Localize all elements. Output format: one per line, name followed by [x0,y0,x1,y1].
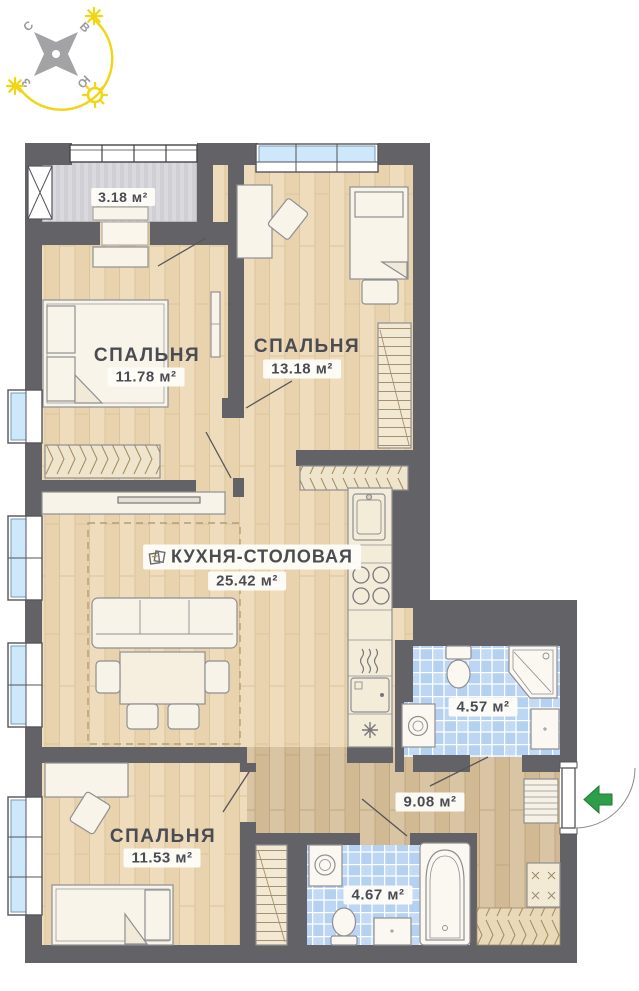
entry-door-leaf [562,768,575,828]
dining-table [120,652,205,704]
sun-icon [86,8,102,24]
compass-west: З [19,75,34,90]
window [8,516,42,600]
vanity [374,918,411,945]
shoe-cabinet [524,779,558,823]
label-bathroom2-area: 4.67 м² [344,886,413,905]
entry-arrow-icon [584,786,612,813]
storage-cabinet [527,863,560,907]
window [8,643,42,727]
floor-hallway [247,747,566,833]
chair [127,704,158,729]
tv [118,497,200,503]
compass-icon: С В З Ю [7,8,112,110]
label-bedroom3-area: 11.53 м² [124,849,201,868]
sun-icon [83,83,107,107]
toilet [333,908,356,936]
floorplan-svg: С В З Ю [0,0,639,991]
pillow [145,890,170,940]
balcony-door-threshold [102,222,148,245]
pillow [47,357,75,401]
balcony-bench [93,207,148,220]
nightstand [362,280,398,304]
washing-machine [402,704,435,747]
pillow [355,192,403,217]
label-hallway-area: 9.08 м² [396,793,465,812]
pillow [47,306,75,353]
label-kitchen-name: КУХНЯ-СТОЛОВАЯ [171,547,353,568]
label-kitchen: КУХНЯ-СТОЛОВАЯ [143,545,361,570]
washing-machine [309,845,342,886]
chair [205,661,229,693]
label-bedroom2-name: СПАЛЬНЯ [254,336,360,358]
sun-icon [7,78,23,94]
dresser [93,247,148,267]
label-bedroom3-name: СПАЛЬНЯ [110,826,216,848]
floorplan: С В З Ю 3.18 м² СПАЛЬНЯ 11.78 м² СПАЛЬНЯ… [0,0,639,991]
label-balcony-area: 3.18 м² [91,188,155,206]
toilet [446,646,471,659]
compass-north: С [20,18,36,34]
label-bedroom1-name: СПАЛЬНЯ [94,345,200,367]
entrance [560,762,635,834]
chair [168,704,199,729]
window [8,797,42,915]
door-leaf [211,292,220,357]
window [8,390,42,443]
chair [96,661,120,693]
label-bedroom2-area: 13.18 м² [263,360,341,379]
sofa [92,598,237,648]
bathtub [420,843,470,945]
desk [237,185,272,258]
window [256,144,378,172]
label-bathroom1-area: 4.57 м² [449,698,518,717]
label-bedroom1-area: 11.78 м² [108,368,185,387]
kitchen-logo-icon [147,547,167,567]
label-kitchen-area: 25.42 м² [208,572,286,591]
compass-east: В [77,19,93,35]
